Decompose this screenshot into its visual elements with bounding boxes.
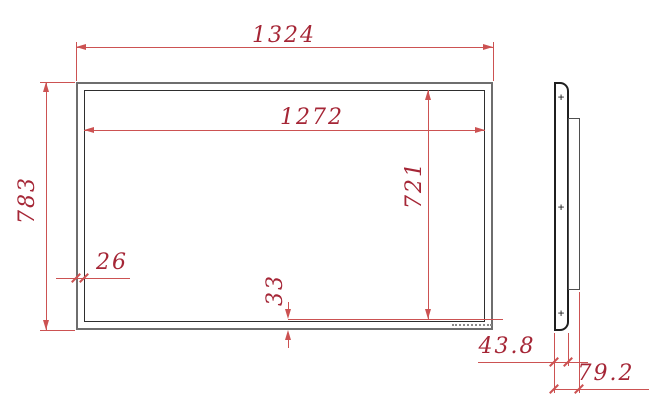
ext-line-active-bottom [288, 319, 503, 320]
dim-line-1272 [84, 130, 485, 131]
arrowhead-33-lower [285, 330, 291, 340]
center-mark-middle: + [558, 202, 565, 213]
dim-line-79-2 [554, 389, 649, 390]
ext-line-bottom-783 [40, 330, 75, 331]
arrowhead-1324-right [483, 44, 493, 50]
arrowhead-721-bottom [425, 309, 431, 319]
arrowhead-1272-right [475, 127, 485, 133]
ext-line-right-1324 [493, 42, 494, 81]
arrowhead-1324-left [76, 44, 86, 50]
dim-label-overall-width: 1324 [252, 25, 316, 47]
dim-line-33-lower [288, 340, 289, 348]
dim-label-side-bezel: 26 [96, 252, 128, 274]
arrowhead-721-top [425, 90, 431, 100]
center-mark-bottom: + [558, 308, 565, 319]
arrowhead-783-bottom [43, 320, 49, 330]
dim-label-active-width: 1272 [280, 107, 344, 129]
dim-line-43-8 [478, 362, 588, 363]
dim-line-26 [56, 278, 130, 279]
arrowhead-1272-left [84, 127, 94, 133]
dim-label-panel-depth: 43.8 [479, 336, 536, 358]
dim-line-783 [46, 82, 47, 330]
dim-label-active-height: 721 [404, 161, 426, 209]
dim-label-overall-height: 783 [17, 176, 39, 224]
dim-label-total-depth: 79.2 [578, 363, 635, 385]
dimension-drawing: 1324 783 1272 721 26 33 + + + 43.8 79.2 [0, 0, 650, 413]
side-view-rear-box [568, 118, 580, 290]
arrowhead-33-upper [285, 309, 291, 319]
center-mark-top: + [558, 92, 565, 103]
arrowhead-783-top [43, 82, 49, 92]
dim-line-721 [428, 90, 429, 319]
dim-label-bottom-bezel: 33 [265, 274, 287, 306]
control-strip-dotted-line [452, 324, 492, 326]
